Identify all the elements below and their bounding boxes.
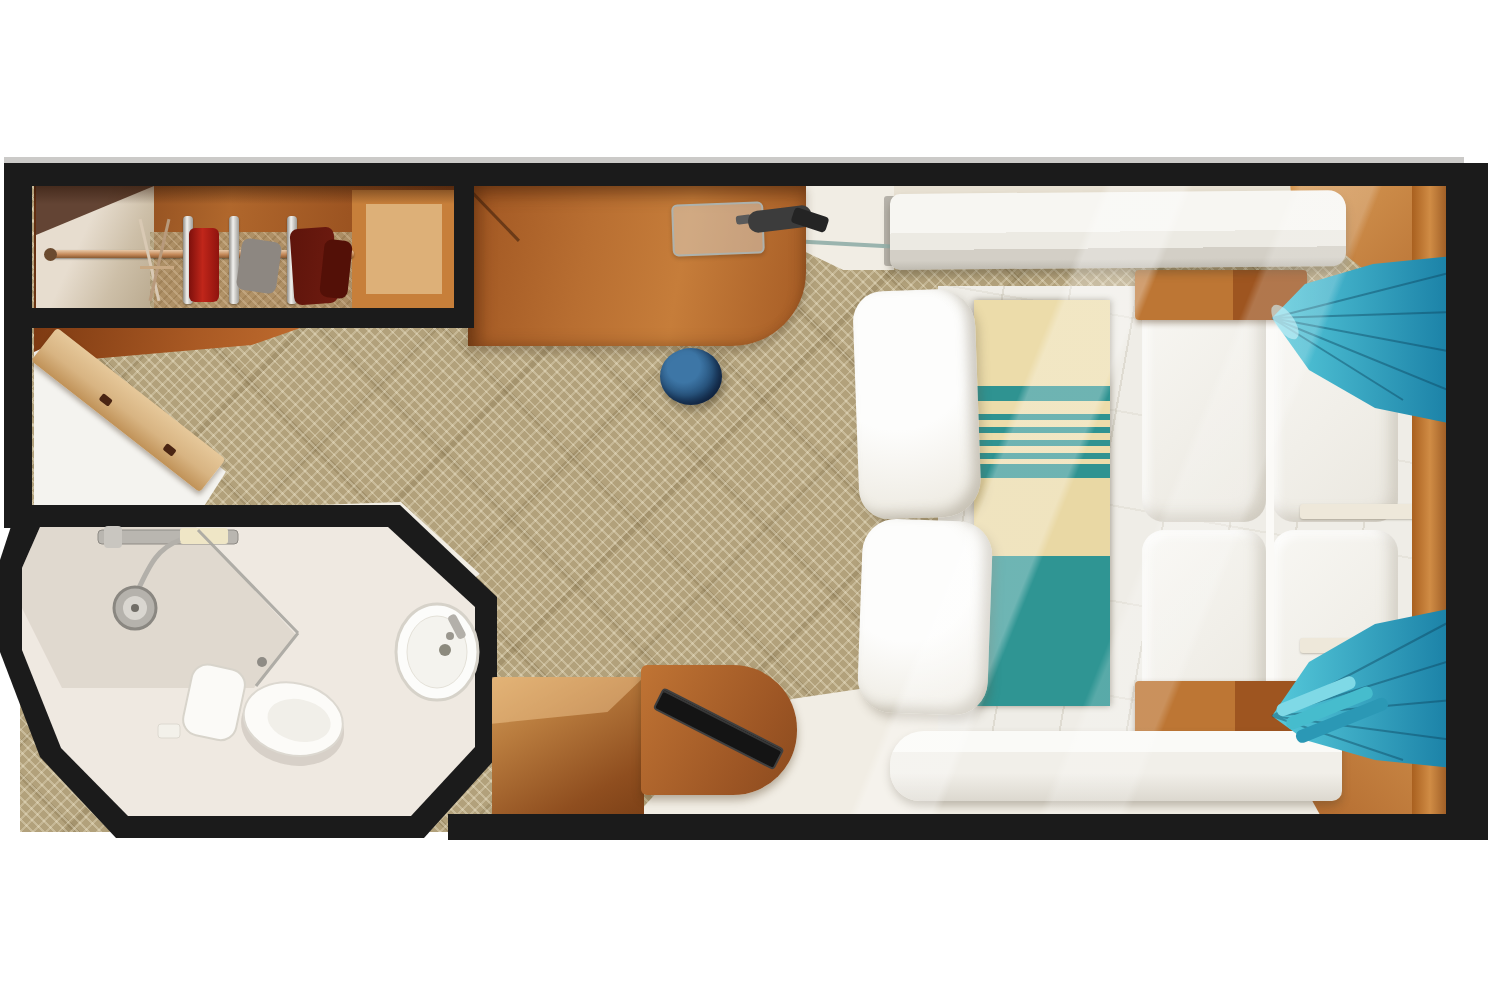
bed-runner (974, 300, 1110, 706)
shower-valve (104, 526, 122, 548)
curtain-swag-top (1272, 256, 1453, 424)
closet-rod-end (44, 248, 57, 261)
bedding-panel (1142, 296, 1266, 522)
wall-closet-divider-right (454, 163, 474, 328)
hanger-crossbar (140, 266, 174, 269)
wall-left (4, 163, 32, 528)
curtains (1253, 248, 1453, 776)
wall-top (4, 163, 1466, 186)
floor-drain (158, 724, 180, 738)
hanger (229, 216, 239, 304)
garment-gray (236, 237, 283, 294)
wall-right (1446, 163, 1488, 840)
shower-head-center (131, 604, 139, 612)
door-handle (163, 443, 177, 457)
wall-closet-divider (4, 308, 472, 328)
pillow (857, 518, 994, 716)
vanity-stool (660, 348, 722, 405)
faucet-tip (446, 632, 454, 640)
closet-shelf-shadow (34, 184, 456, 204)
glass-door-handle (257, 657, 267, 667)
closet-side-panel-inner (366, 204, 442, 294)
sink-drain (439, 644, 451, 656)
bathroom (0, 486, 510, 842)
stateroom-floorplan (0, 0, 1488, 992)
door-handle (99, 393, 113, 407)
wall-bottom (448, 814, 1488, 840)
garment-red (189, 228, 219, 302)
pillow (852, 288, 982, 520)
